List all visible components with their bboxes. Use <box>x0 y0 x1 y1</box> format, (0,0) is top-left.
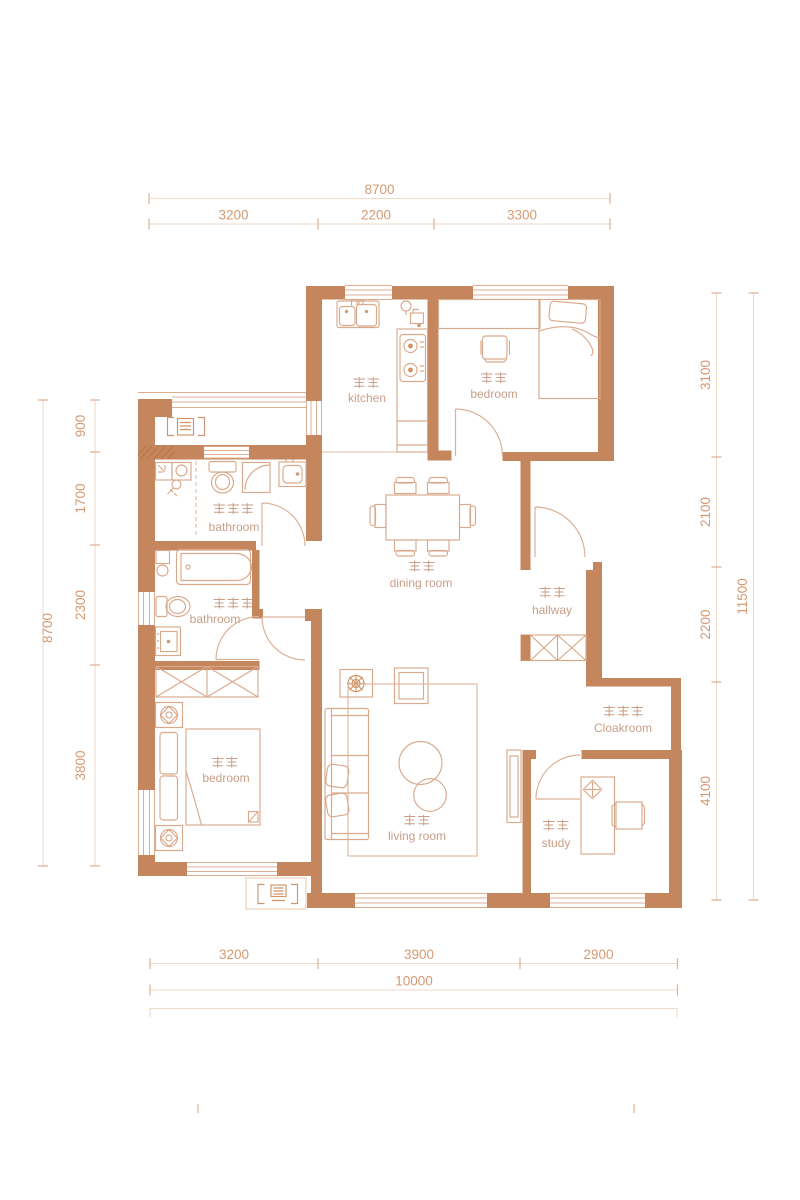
svg-text:1700: 1700 <box>73 483 88 513</box>
svg-text:3200: 3200 <box>219 947 249 962</box>
svg-text:3800: 3800 <box>73 750 88 780</box>
svg-text:2200: 2200 <box>361 208 391 223</box>
svg-text:bedroom: bedroom <box>470 387 517 401</box>
svg-text:hallway: hallway <box>532 603 572 617</box>
svg-text:11500: 11500 <box>735 578 750 615</box>
svg-text:2200: 2200 <box>698 609 713 639</box>
svg-text:900: 900 <box>73 415 88 438</box>
svg-text:4100: 4100 <box>698 776 713 806</box>
svg-text:2100: 2100 <box>698 497 713 527</box>
svg-text:2900: 2900 <box>583 947 613 962</box>
svg-text:3300: 3300 <box>507 208 537 223</box>
svg-text:3200: 3200 <box>218 208 248 223</box>
svg-text:kitchen: kitchen <box>348 391 386 405</box>
svg-text:8700: 8700 <box>40 613 55 643</box>
svg-text:10000: 10000 <box>395 974 433 989</box>
svg-text:living room: living room <box>388 829 446 843</box>
svg-text:bathroom: bathroom <box>190 612 241 626</box>
svg-text:bathroom: bathroom <box>209 520 260 534</box>
svg-text:bedroom: bedroom <box>202 771 249 785</box>
svg-text:8700: 8700 <box>364 182 394 197</box>
svg-text:3900: 3900 <box>404 947 434 962</box>
svg-text:study: study <box>542 836 571 850</box>
svg-text:dining room: dining room <box>390 576 453 590</box>
svg-text:2300: 2300 <box>73 590 88 620</box>
svg-text:Cloakroom: Cloakroom <box>594 721 652 735</box>
svg-text:3100: 3100 <box>698 360 713 390</box>
